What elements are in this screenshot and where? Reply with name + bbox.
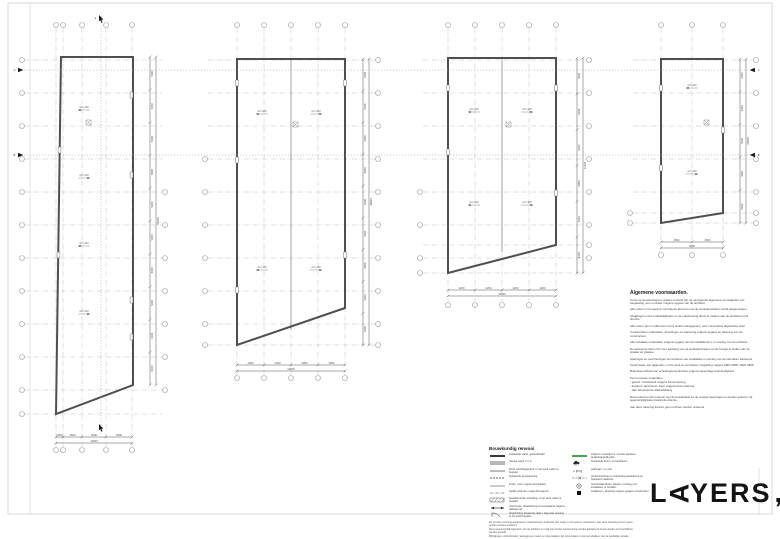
plan-4: af 1:100af 1:100450045009000540053005200… (628, 23, 759, 258)
svg-text:5200: 5200 (363, 199, 367, 205)
slope-label: af 1:100 (468, 200, 480, 206)
shaft-symbol (506, 122, 511, 127)
svg-text:6000: 6000 (150, 168, 154, 174)
svg-text:9000: 9000 (689, 244, 695, 248)
legend-item-label: draairichting draaiende delen, dagmaat o… (509, 512, 565, 518)
legend-symbol-tree (571, 460, 589, 466)
svg-text:3950: 3950 (302, 361, 308, 365)
legend-symbol-line-dashed (489, 475, 507, 481)
slope-label: af 1:100 (78, 105, 90, 111)
legend-footnote-line: Deze tekening blijft eigendom van de arc… (489, 528, 641, 534)
svg-text:af 1:100: af 1:100 (79, 309, 89, 313)
svg-text:af 1:100: af 1:100 (257, 109, 267, 113)
legend-symbol-line-double-thin (489, 468, 507, 474)
slope-label: af 1:100 (686, 169, 698, 175)
svg-text:af 1:100: af 1:100 (522, 200, 532, 204)
legend-item-label: lichte scheidingswand, in het werk nader… (509, 468, 565, 474)
floor-plan-drawing: af 1:100af 1:100af 1:100af 1:10010003600… (0, 0, 780, 520)
svg-text:4300: 4300 (740, 170, 744, 176)
svg-text:af 1:100: af 1:100 (79, 105, 89, 109)
conditions-line: Brandwerendheid van scheidingsconstructi… (630, 370, 757, 374)
legend-item: kozijn, merk volgens kozijnstaat (489, 483, 565, 489)
svg-text:6000: 6000 (150, 267, 154, 273)
legend-column-left: bestaande wand, gehandhaafdnieuwe wand /… (489, 453, 565, 518)
right-dimensions: 54005200520060005200430031300 (576, 57, 587, 275)
svg-text:3600: 3600 (116, 433, 122, 437)
svg-text:5200: 5200 (577, 108, 581, 114)
svg-text:3600: 3600 (91, 433, 97, 437)
legend-item: hemelwaterafvoer, plaats in overleg met … (571, 483, 649, 489)
plan-3: af 1:100af 1:100af 1:100af 1:10042004200… (418, 23, 592, 308)
building-outline (56, 57, 133, 414)
svg-text:5200: 5200 (577, 144, 581, 150)
svg-text:4200: 4200 (486, 286, 492, 290)
conditions-line: Alle installatie-onderdelen volgens opga… (630, 341, 757, 345)
legend-item: + P=0peilmaat t.o.v. peil (571, 468, 649, 474)
legend-symbol-line-thick (489, 453, 507, 459)
conditions-line: - dak: bitumineuze dakbedekking (630, 389, 757, 393)
svg-text:31300: 31300 (583, 161, 587, 169)
legend-item-label: erfgrens / kavelgrens, nieuwe aanplant l… (591, 453, 649, 459)
slope-label: af 1:100 (686, 83, 698, 89)
legend-item: hartlijn stramien / eigendomsgrens (489, 490, 565, 496)
svg-text:4200: 4200 (459, 286, 465, 290)
conditions-line: Aan deze tekening kunnen geen rechten wo… (630, 406, 757, 410)
svg-text:af 1:100: af 1:100 (469, 107, 479, 111)
svg-text:6000: 6000 (363, 167, 367, 173)
legend-item: bestaande boom, te handhaven (571, 460, 649, 466)
general-conditions-title: Algemene voorwaarden. (630, 290, 757, 296)
svg-text:11800: 11800 (90, 439, 98, 443)
svg-text:5400: 5400 (740, 72, 744, 78)
svg-text:5400: 5400 (577, 72, 581, 78)
svg-text:af 1:100: af 1:100 (687, 83, 697, 87)
logo-comma: , (775, 478, 780, 508)
legend: Bouwkundig renvooi bestaande wand, gehan… (489, 446, 649, 539)
svg-text:af 1:100: af 1:100 (469, 200, 479, 204)
legend-item: terreininrichting en verharding aansluit… (571, 475, 649, 481)
svg-text:af 1:100: af 1:100 (79, 173, 89, 177)
sheet-frame (8, 3, 772, 514)
svg-text:af 1:100: af 1:100 (522, 107, 532, 111)
legend-symbol-line-x (571, 475, 589, 481)
svg-text:4200: 4200 (540, 286, 546, 290)
svg-text:16800: 16800 (287, 367, 295, 371)
svg-text:af 1:100: af 1:100 (79, 241, 89, 245)
conditions-line: Tenzij op de tekening(en) anders vermeld… (630, 299, 757, 306)
logo-rotated-a: A (664, 482, 695, 504)
svg-text:B: B (14, 153, 16, 157)
svg-text:5400: 5400 (740, 203, 744, 209)
slope-label: af 1:100 (468, 107, 480, 113)
svg-text:4300: 4300 (577, 252, 581, 258)
legend-item-label: peilmaat t.o.v. peil (591, 468, 612, 471)
svg-text:54000: 54000 (156, 217, 160, 225)
legend-item: lichte scheidingswand, in het werk nader… (489, 468, 565, 474)
slope-label: af 1:100 (256, 265, 268, 271)
legend-symbol-square (571, 490, 589, 496)
svg-text:5200: 5200 (150, 234, 154, 240)
svg-text:4500: 4500 (674, 238, 680, 242)
svg-text:af 1:100: af 1:100 (311, 265, 321, 269)
svg-text:6000: 6000 (577, 180, 581, 186)
legend-item: brandwerende scheiding, in het werk nade… (489, 497, 565, 503)
right-dimensions: 5400520052006000520052006000520054004880… (362, 58, 373, 347)
legend-item: draairichting draaiende delen, dagmaat o… (489, 512, 565, 518)
general-conditions: Algemene voorwaarden. Tenzij op de teken… (630, 290, 757, 410)
slope-label: af 1:100 (78, 241, 90, 247)
conditions-line: Alle maten in het werk te controleren al… (630, 308, 757, 312)
svg-text:af 1:100: af 1:100 (687, 169, 697, 173)
svg-text:3600: 3600 (70, 433, 76, 437)
plan-1: af 1:100af 1:100af 1:100af 1:10010003600… (20, 23, 168, 453)
conditions-line: Deze tekening dient samen met de bestekt… (630, 396, 757, 403)
svg-text:3950: 3950 (329, 361, 335, 365)
legend-title: Bouwkundig renvooi (489, 446, 649, 451)
svg-text:4450: 4450 (275, 361, 281, 365)
legend-symbol-line-double (489, 460, 507, 466)
svg-text:5400: 5400 (363, 71, 367, 77)
svg-text:5400: 5400 (363, 326, 367, 332)
legend-symbol-arc (489, 512, 507, 518)
legend-item-label: bestaande gevelopening (509, 475, 537, 478)
legend-symbol-text-peil: + P=0 (571, 468, 589, 474)
right-dimensions: 5400520052006000520052006000520052005400… (149, 56, 160, 387)
slope-label: af 1:100 (521, 107, 533, 113)
conditions-line: Alle maten zijn in millimeters tenzij an… (630, 325, 757, 329)
svg-text:6000: 6000 (363, 262, 367, 268)
legend-item-label: staalkolom, afmeting volgens opgave cons… (591, 490, 649, 493)
svg-text:B: B (758, 153, 760, 157)
slope-label: af 1:100 (78, 309, 90, 315)
legend-footnote: De op deze tekening aangegeven maatvoeri… (489, 521, 641, 538)
right-dimensions: 5400530052004300540025600 (739, 58, 750, 225)
legend-item: vluchtroute, draairichting en loopafstan… (489, 505, 565, 511)
legend-symbol-line-thin (489, 483, 507, 489)
legend-item-label: terreininrichting en verharding aansluit… (591, 475, 649, 481)
legend-item: erfgrens / kavelgrens, nieuwe aanplant l… (571, 453, 649, 459)
svg-text:5200: 5200 (363, 135, 367, 141)
svg-text:4500: 4500 (705, 238, 711, 242)
legend-symbol-arrow (489, 505, 507, 511)
svg-text:4450: 4450 (248, 361, 254, 365)
legend-item-label: bestaande boom, te handhaven (591, 460, 628, 463)
svg-text:A: A (14, 68, 16, 72)
legend-symbol-line-dashdot (489, 490, 507, 496)
svg-text:a: a (95, 17, 97, 20)
slope-label: af 1:100 (78, 173, 90, 179)
svg-text:5200: 5200 (363, 103, 367, 109)
svg-text:1000: 1000 (57, 433, 63, 437)
conditions-line: Afwijkingen en/of onduidelijkheden in de… (630, 315, 757, 322)
layers-logo: LAYERS, (650, 478, 780, 509)
legend-item: bestaande wand, gehandhaafd (489, 453, 565, 459)
slope-label: af 1:100 (521, 200, 533, 206)
legend-item-label: hartlijn stramien / eigendomsgrens (509, 490, 549, 493)
shaft-symbol (86, 120, 91, 125)
svg-text:25600: 25600 (746, 137, 750, 145)
conditions-line: Constructieve onderdelen, afmetingen en … (630, 331, 757, 338)
svg-text:5400: 5400 (150, 365, 154, 371)
svg-text:5200: 5200 (363, 294, 367, 300)
legend-columns: bestaande wand, gehandhaafdnieuwe wand /… (489, 453, 649, 518)
bottom-dimensions: 100036003600360011800 (55, 433, 134, 445)
svg-text:5200: 5200 (150, 136, 154, 142)
legend-item: nieuwe wand / n.t.b. (489, 460, 565, 466)
shaft-symbol (293, 122, 298, 127)
svg-text:af 1:100: af 1:100 (311, 109, 321, 113)
svg-text:+ P=0: + P=0 (573, 469, 582, 473)
legend-symbol-rect-hatch (489, 497, 507, 503)
legend-column-right: erfgrens / kavelgrens, nieuwe aanplant l… (571, 453, 649, 518)
drawing-sheet: af 1:100af 1:100af 1:100af 1:10010003600… (0, 0, 780, 520)
legend-item-label: kozijn, merk volgens kozijnstaat (509, 483, 545, 486)
svg-text:4200: 4200 (513, 286, 519, 290)
svg-text:5200: 5200 (150, 332, 154, 338)
plan-2: af 1:100af 1:100af 1:100af 1:10044504450… (203, 23, 381, 381)
svg-text:5200: 5200 (577, 216, 581, 222)
shaft-symbol (704, 120, 709, 125)
svg-text:48800: 48800 (369, 198, 373, 206)
slope-label: af 1:100 (256, 109, 268, 115)
conditions-line: Sparingen en voorzieningen ten behoeve v… (630, 358, 757, 362)
legend-footnote-line: Wijzigingen voorbehouden; aangegeven mat… (489, 535, 641, 538)
general-conditions-text: Tenzij op de tekening(en) anders vermeld… (630, 299, 757, 410)
svg-text:5200: 5200 (150, 300, 154, 306)
conditions-line: Kozijnmaten zijn dagmaten, in het werk t… (630, 364, 757, 368)
legend-item: staalkolom, afmeting volgens opgave cons… (571, 490, 649, 496)
logo-letters-yers: YERS (690, 478, 772, 508)
legend-item-label: nieuwe wand / n.t.b. (509, 460, 532, 463)
legend-item-label: bestaande wand, gehandhaafd (509, 453, 545, 456)
svg-text:5200: 5200 (740, 138, 744, 144)
slope-label: af 1:100 (310, 109, 322, 115)
svg-text:5200: 5200 (150, 201, 154, 207)
legend-symbol-line-green (571, 453, 589, 459)
legend-item-label: brandwerende scheiding, in het werk nade… (509, 497, 565, 503)
legend-item: bestaande gevelopening (489, 475, 565, 481)
slope-label: af 1:100 (310, 265, 322, 271)
svg-text:A: A (758, 68, 760, 72)
svg-text:5200: 5200 (363, 230, 367, 236)
legend-item-label: vluchtroute, draairichting en loopafstan… (509, 505, 565, 511)
legend-symbol-circle-dot (571, 483, 589, 489)
conditions-line: De aannemer dient zich voor aanvang van … (630, 348, 757, 355)
legend-footnote-line: De op deze tekening aangegeven maatvoeri… (489, 521, 641, 527)
svg-text:5200: 5200 (150, 103, 154, 109)
svg-text:16800: 16800 (498, 292, 506, 296)
legend-item-label: hemelwaterafvoer, plaats in overleg met … (591, 483, 649, 489)
svg-text:5400: 5400 (150, 70, 154, 76)
svg-text:5300: 5300 (740, 105, 744, 111)
svg-text:af 1:100: af 1:100 (257, 265, 267, 269)
